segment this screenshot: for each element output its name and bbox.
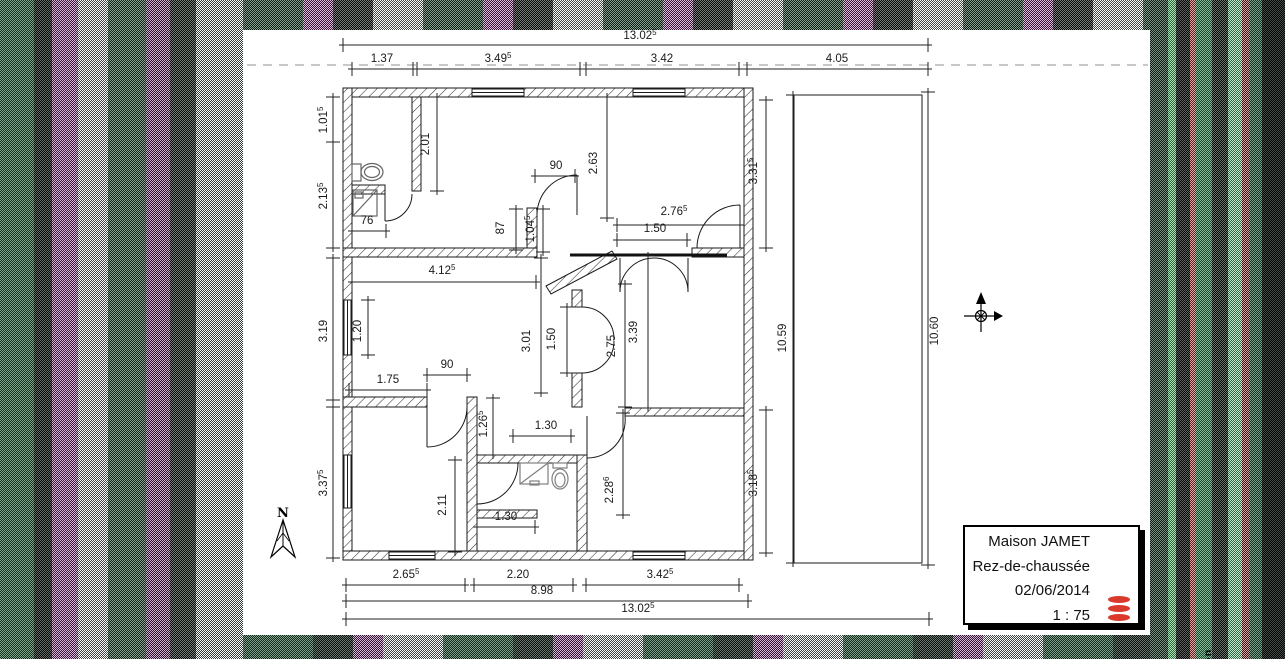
north-arrow: N bbox=[271, 506, 295, 557]
dimension-label: 1.015 bbox=[316, 106, 330, 133]
dimension-1.20: 1.20 bbox=[352, 296, 375, 359]
dimension-label: 1.50 bbox=[644, 223, 666, 235]
door-arc bbox=[654, 258, 688, 292]
dimension-13.02: 13.025 bbox=[339, 28, 932, 52]
dimension-label: 3.375 bbox=[316, 469, 330, 496]
dimension-2.75: 2.75 bbox=[606, 280, 632, 411]
wall-segment bbox=[577, 455, 587, 551]
axis-origin-icon bbox=[964, 292, 1003, 332]
sink-icon bbox=[520, 463, 548, 485]
dimension-10.60: 10.60 bbox=[921, 88, 941, 569]
dimension-label: 1.20 bbox=[352, 320, 364, 342]
title-block: Maison JAMET Rez-de-chaussée 02/06/2014 … bbox=[963, 525, 1140, 625]
dimension-label: 10.59 bbox=[777, 324, 789, 353]
wall-segment bbox=[343, 88, 753, 97]
brand-dot bbox=[1108, 614, 1130, 621]
door-arc bbox=[697, 205, 740, 248]
brand-name-secondary: Application bbox=[1202, 648, 1214, 659]
door-arc bbox=[582, 307, 614, 339]
brand-logo-text: Micro Application bbox=[1178, 522, 1218, 659]
brand-logo: Micro Application bbox=[1096, 527, 1138, 623]
dimension-label: 3.495 bbox=[485, 51, 512, 65]
wall-segment bbox=[625, 408, 744, 416]
dimension-1.50: 1.50 bbox=[613, 223, 691, 247]
dimension-label: 1.75 bbox=[377, 374, 399, 386]
dimension-label: 3.19 bbox=[318, 320, 330, 342]
brand-dot bbox=[1108, 605, 1130, 612]
dimension-label: 1.30 bbox=[535, 420, 557, 432]
dimension-2.13: 2.135 bbox=[316, 138, 340, 252]
wall-segment bbox=[572, 373, 582, 407]
dimension-label: 2.286 bbox=[602, 476, 616, 503]
dimension-label: 13.025 bbox=[621, 601, 655, 615]
dimension-1.26: 1.265 bbox=[476, 394, 500, 459]
dimension-label: 1.30 bbox=[495, 511, 517, 523]
dimension-label: 1.50 bbox=[546, 328, 558, 350]
toilet-icon bbox=[552, 463, 568, 489]
floor-name: Rez-de-chaussée bbox=[965, 555, 1090, 580]
dimension-label: 3.425 bbox=[647, 567, 674, 581]
dimension-label: 8.98 bbox=[531, 585, 553, 597]
project-name: Maison JAMET bbox=[965, 530, 1090, 555]
dimension-label: 3.01 bbox=[521, 330, 533, 352]
dimension-3.49: 3.495 bbox=[413, 51, 584, 76]
dimension-1.01: 1.015 bbox=[316, 93, 340, 146]
brand-dot bbox=[1108, 596, 1130, 603]
dimension-label: 87 bbox=[495, 222, 507, 235]
dimension-1.50: 1.50 bbox=[546, 303, 574, 377]
dimension-label: 2.655 bbox=[393, 567, 420, 581]
dimension-label: 2.20 bbox=[507, 569, 529, 581]
brand-logo-dots bbox=[1108, 596, 1130, 623]
dimension-3.01: 3.01 bbox=[521, 254, 548, 397]
dimension-label: 90 bbox=[441, 359, 454, 371]
dimension-13.02: 13.025 bbox=[342, 601, 933, 626]
dimension-3.39: 3.39 bbox=[628, 252, 655, 412]
dimension-label: 3.42 bbox=[651, 53, 673, 65]
dimension-8.98: 8.98 bbox=[342, 585, 752, 608]
dimension-1.75: 1.75 bbox=[345, 374, 431, 397]
dimension-76: 76 bbox=[348, 215, 390, 238]
dimension-label: 2.63 bbox=[588, 152, 600, 174]
dimension-90: 90 bbox=[423, 359, 471, 382]
dimension-label: 90 bbox=[550, 160, 563, 172]
dimension-2.01: 2.01 bbox=[420, 93, 444, 195]
wall-segment bbox=[477, 455, 577, 463]
wall-segment bbox=[343, 248, 537, 257]
dimension-1.30: 1.30 bbox=[509, 420, 575, 443]
dimension-3.42: 3.425 bbox=[582, 567, 743, 592]
dimension-2.65: 2.655 bbox=[342, 567, 469, 592]
dimension-label: 4.05 bbox=[826, 53, 848, 65]
dimension-2.20: 2.20 bbox=[470, 569, 577, 592]
dimension-87: 87 bbox=[495, 205, 523, 254]
walls bbox=[343, 88, 753, 560]
dimension-label: 10.60 bbox=[929, 317, 941, 346]
dimension-label: 2.765 bbox=[661, 204, 688, 218]
wall-segment bbox=[572, 290, 582, 307]
door-arc bbox=[385, 194, 412, 221]
wall-segment bbox=[467, 397, 477, 551]
title-block-text: Maison JAMET Rez-de-chaussée 02/06/2014 … bbox=[965, 527, 1096, 623]
dimension-label: 2.11 bbox=[437, 494, 449, 516]
cad-canvas: N 13.0251.373.4953.424.052.6552.203.4258… bbox=[0, 0, 1285, 659]
dimension-2.28: 2.286 bbox=[602, 409, 630, 519]
dimension-label: 3.315 bbox=[746, 157, 760, 184]
door-arc bbox=[587, 416, 625, 458]
toilet-icon bbox=[352, 164, 383, 182]
dimension-label: 1.37 bbox=[371, 53, 393, 65]
dimension-1.37: 1.37 bbox=[348, 53, 417, 76]
dimension-label: 3.185 bbox=[746, 469, 760, 496]
dimension-label: 76 bbox=[361, 215, 374, 227]
dimension-4.12: 4.125 bbox=[348, 263, 540, 289]
dimension-3.37: 3.375 bbox=[316, 403, 340, 562]
dimension-3.19: 3.19 bbox=[318, 254, 340, 404]
door-arc bbox=[427, 407, 467, 447]
drawing-date: 02/06/2014 bbox=[965, 579, 1090, 604]
dimension-label: 13.025 bbox=[623, 28, 657, 42]
dimension-label: 2.75 bbox=[606, 335, 618, 357]
drawing-scale: 1 : 75 bbox=[965, 604, 1090, 629]
wall-segment bbox=[546, 251, 617, 294]
wall-segment bbox=[343, 397, 427, 407]
dimension-2.63: 2.63 bbox=[588, 93, 614, 222]
dimension-2.11: 2.11 bbox=[437, 456, 462, 556]
dimensions: 13.0251.373.4953.424.052.6552.203.4258.9… bbox=[316, 28, 941, 626]
dimension-90: 90 bbox=[531, 160, 579, 183]
dimension-label: 4.125 bbox=[429, 263, 456, 277]
door-arc bbox=[477, 463, 518, 504]
dimension-10.59: 10.59 bbox=[777, 91, 800, 567]
dimension-label: 3.39 bbox=[628, 321, 640, 343]
dimension-label: 2.135 bbox=[316, 182, 330, 209]
garage-outline bbox=[794, 95, 922, 563]
dimension-label: 2.01 bbox=[420, 133, 432, 155]
dimension-label: 1.265 bbox=[476, 410, 490, 437]
